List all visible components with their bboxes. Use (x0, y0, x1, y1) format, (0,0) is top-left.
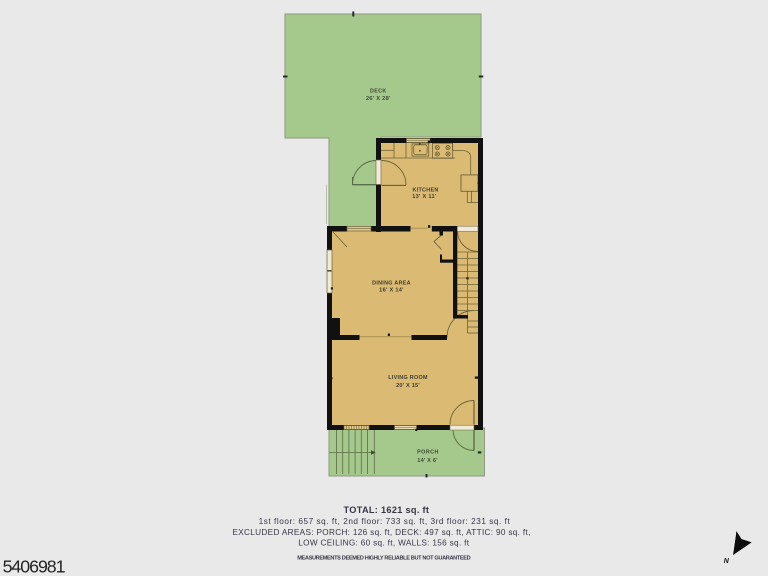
svg-text:26' X 28': 26' X 28' (366, 96, 391, 102)
svg-text:LIVING ROOM: LIVING ROOM (388, 375, 428, 381)
svg-text:DINING AREA: DINING AREA (372, 280, 411, 286)
svg-text:1st floor: 657 sq. ft, 2nd flo: 1st floor: 657 sq. ft, 2nd floor: 733 sq… (259, 517, 511, 526)
svg-text:EXCLUDED AREAS: PORCH: 126 sq.: EXCLUDED AREAS: PORCH: 126 sq. ft, DECK:… (232, 528, 530, 537)
svg-text:5406981: 5406981 (3, 557, 66, 576)
svg-text:PORCH: PORCH (417, 450, 439, 456)
svg-text:KITCHEN: KITCHEN (412, 187, 438, 193)
svg-text:16' X 14': 16' X 14' (379, 287, 404, 293)
svg-text:DECK: DECK (370, 88, 386, 94)
svg-text:LOW CEILING: 60 sq. ft, WALLS:: LOW CEILING: 60 sq. ft, WALLS: 156 sq. f… (298, 539, 470, 548)
svg-text:MEASUREMENTS DEEMED HIGHLY REL: MEASUREMENTS DEEMED HIGHLY RELIABLE BUT … (297, 555, 470, 561)
svg-text:14' X 6': 14' X 6' (417, 458, 438, 464)
svg-text:13' X 11': 13' X 11' (412, 194, 437, 200)
svg-text:20' X 15': 20' X 15' (396, 383, 420, 389)
svg-text:TOTAL: 1621 sq. ft: TOTAL: 1621 sq. ft (344, 505, 430, 515)
